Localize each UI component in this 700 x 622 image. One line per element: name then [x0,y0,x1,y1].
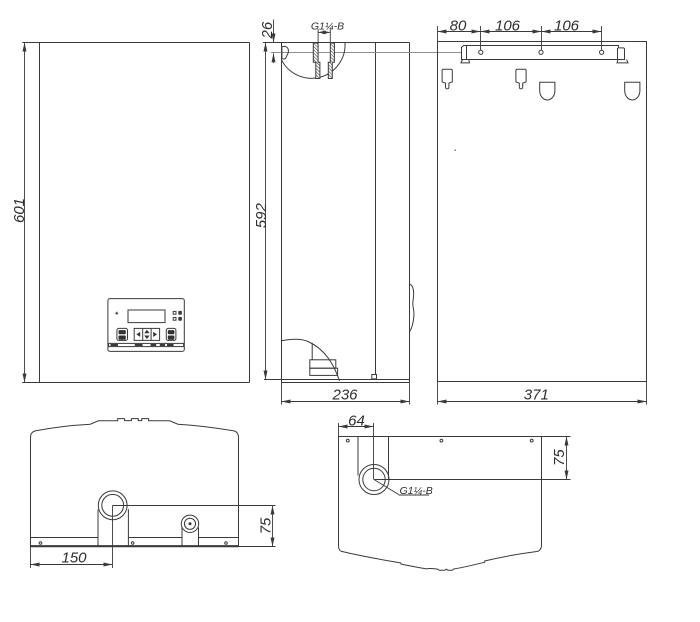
svg-text:80: 80 [450,17,467,34]
svg-text:26: 26 [259,21,276,39]
svg-text:75: 75 [551,449,568,466]
svg-text:75: 75 [257,517,274,534]
svg-text:106: 106 [495,17,521,34]
svg-text:G1¼-B: G1¼-B [400,485,433,497]
svg-text:371: 371 [524,386,549,403]
svg-text:592: 592 [253,203,270,229]
svg-text:64: 64 [348,412,365,429]
svg-text:236: 236 [331,386,358,403]
svg-text:150: 150 [61,549,87,566]
svg-text:601: 601 [11,198,28,223]
svg-text:106: 106 [554,17,580,34]
svg-text:G1¼-B: G1¼-B [311,20,344,32]
